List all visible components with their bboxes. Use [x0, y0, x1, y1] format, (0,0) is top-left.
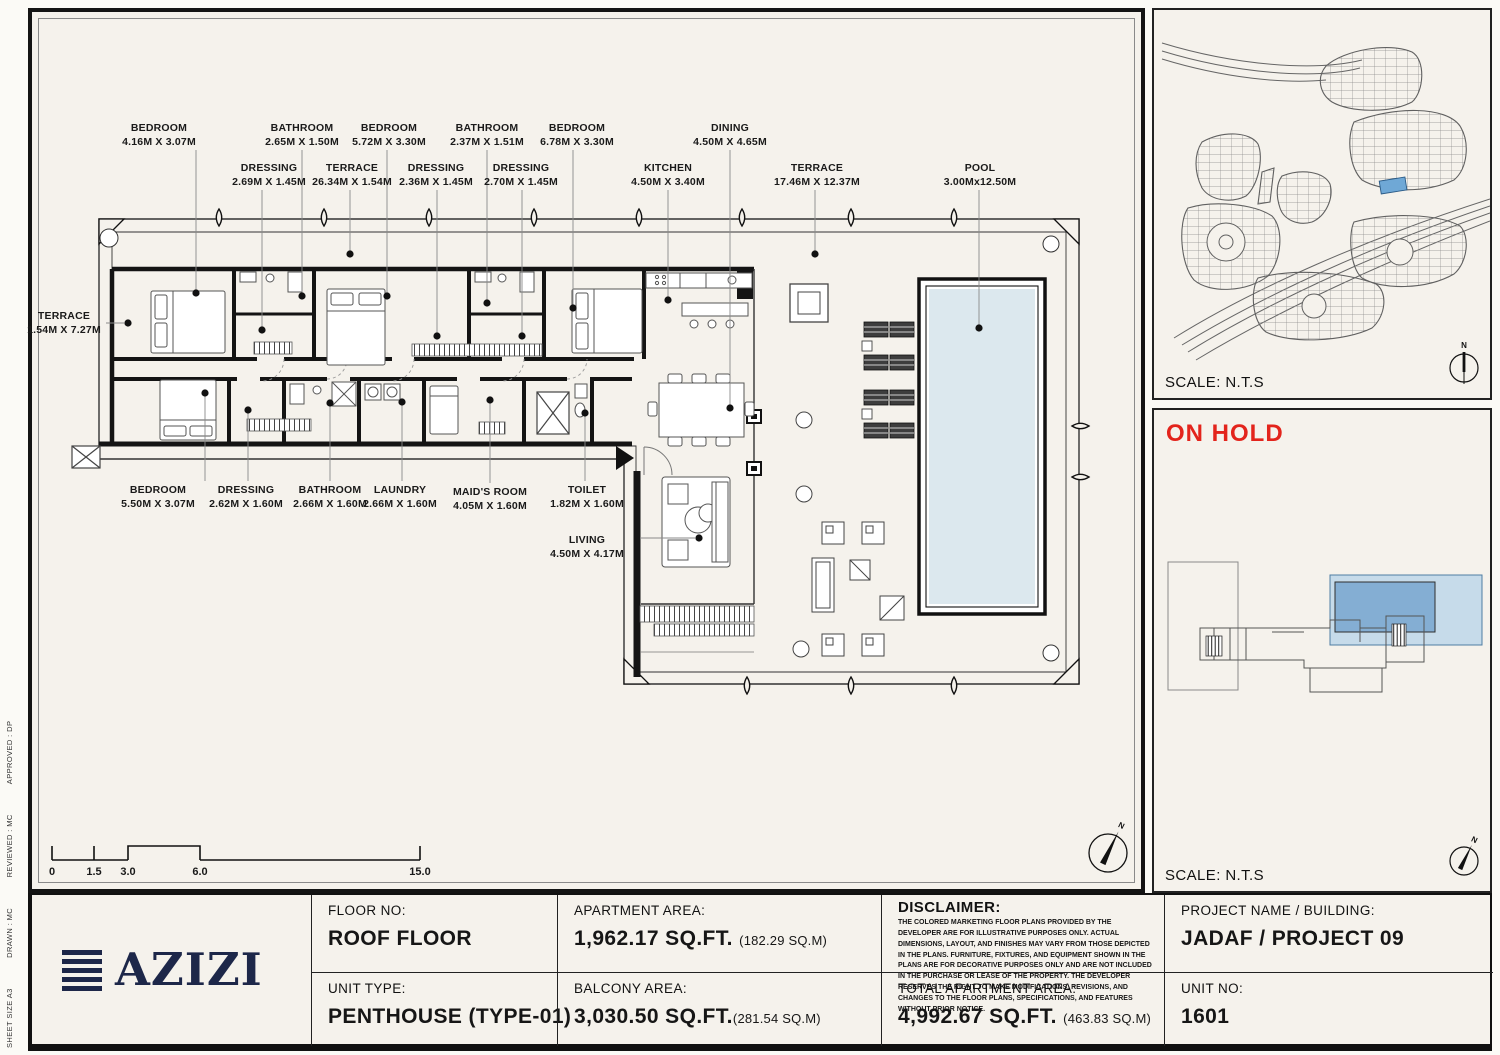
- scale-tick: 1.5: [86, 866, 101, 878]
- svg-text:N: N: [1461, 341, 1467, 350]
- floor-no-label: FLOOR NO:: [312, 895, 557, 918]
- approved-by: APPROVED : DP: [5, 721, 14, 785]
- location-map-panel: SCALE: N.T.S N: [1152, 8, 1492, 400]
- project-name-value: JADAF / PROJECT 09: [1165, 918, 1493, 951]
- total-area-value: 4,992.67 SQ.FT. (463.83 SQ.M): [882, 996, 1164, 1029]
- balcony-area-value: 3,030.50 SQ.FT.(281.54 SQ.M): [558, 996, 881, 1029]
- project-name-label: PROJECT NAME / BUILDING:: [1165, 895, 1493, 918]
- balcony-area-label: BALCONY AREA:: [558, 973, 881, 996]
- room-label: TERRACE1.54M X 7.27M: [27, 310, 101, 337]
- unit-type-cell: UNIT TYPE: PENTHOUSE (TYPE-01): [311, 972, 557, 1046]
- apartment-area-cell: APARTMENT AREA: 1,962.17 SQ.FT. (182.29 …: [557, 895, 881, 972]
- room-label: BEDROOM6.78M X 3.30M: [540, 122, 614, 149]
- keyplan-scale-label: SCALE: N.T.S: [1165, 867, 1264, 884]
- scale-tick: 15.0: [409, 866, 430, 878]
- unit-status-panel: ON HOLD SCALE: N.T.S N: [1152, 408, 1492, 893]
- unit-highlight-dark: [1335, 582, 1435, 632]
- project-name-cell: PROJECT NAME / BUILDING: JADAF / PROJECT…: [1164, 895, 1493, 972]
- floor-no-cell: FLOOR NO: ROOF FLOOR: [311, 895, 557, 972]
- room-label: BEDROOM5.50M X 3.07M: [121, 484, 195, 511]
- apartment-area-label: APARTMENT AREA:: [558, 895, 881, 918]
- scale-tick: 3.0: [120, 866, 135, 878]
- unit-no-cell: UNIT NO: 1601: [1164, 972, 1493, 1046]
- unit-no-label: UNIT NO:: [1165, 973, 1493, 996]
- unit-no-value: 1601: [1165, 996, 1493, 1029]
- balcony-area-cell: BALCONY AREA: 3,030.50 SQ.FT.(281.54 SQ.…: [557, 972, 881, 1046]
- total-area-cell: TOTAL APARTMENT AREA: 4,992.67 SQ.FT. (4…: [881, 972, 1164, 1046]
- room-label: LAUNDRY2.66M X 1.60M: [363, 484, 437, 511]
- logo-wordmark: AZIZI: [115, 943, 263, 996]
- room-label: DRESSING2.70M X 1.45M: [484, 162, 558, 189]
- room-label: TERRACE26.34M X 1.54M: [312, 162, 392, 189]
- room-label: KITCHEN4.50M X 3.40M: [631, 162, 705, 189]
- room-label: LIVING4.50M X 4.17M: [550, 534, 624, 561]
- room-label: BEDROOM4.16M X 3.07M: [122, 122, 196, 149]
- floor-no-value: ROOF FLOOR: [312, 918, 557, 951]
- map-compass-icon: N: [1446, 340, 1482, 386]
- disclaimer-cell: DISCLAIMER: THE COLORED MARKETING FLOOR …: [881, 895, 1164, 972]
- room-label: TOILET1.82M X 1.60M: [550, 484, 624, 511]
- community-map: [1154, 10, 1490, 398]
- reviewed-by: REVIEWED : MC: [5, 814, 14, 877]
- scale-bar: [52, 846, 420, 860]
- room-label: TERRACE17.46M X 12.37M: [774, 162, 860, 189]
- sheet-info-strip: SHEET SIZE A3 DRAWN : MC REVIEWED : MC A…: [5, 718, 14, 1048]
- drawn-by: DRAWN : MC: [5, 908, 14, 958]
- unit-type-label: UNIT TYPE:: [312, 973, 557, 996]
- svg-text:N: N: [1117, 820, 1126, 831]
- room-label: DRESSING2.69M X 1.45M: [232, 162, 306, 189]
- room-label: BATHROOM2.37M X 1.51M: [450, 122, 524, 149]
- scale-tick: 0: [49, 866, 55, 878]
- apartment-area-value: 1,962.17 SQ.FT. (182.29 SQ.M): [558, 918, 881, 951]
- room-label: BEDROOM5.72M X 3.30M: [352, 122, 426, 149]
- svg-text:N: N: [1470, 835, 1479, 846]
- key-plan: [1154, 530, 1490, 760]
- sheet-size: SHEET SIZE A3: [5, 988, 14, 1048]
- room-label: DRESSING2.36M X 1.45M: [399, 162, 473, 189]
- floor-plan-sheet: N BEDROOM4.16M X 3.07M BATHROOM2.65M X 1…: [28, 8, 1145, 893]
- status-badge: ON HOLD: [1166, 420, 1284, 448]
- developer-logo: AZIZI: [32, 895, 311, 1044]
- unit-type-value: PENTHOUSE (TYPE-01): [312, 996, 557, 1029]
- room-label: POOL3.00Mx12.50M: [944, 162, 1016, 189]
- map-scale-label: SCALE: N.T.S: [1165, 374, 1264, 391]
- room-label: DINING4.50M X 4.65M: [693, 122, 767, 149]
- room-label: BATHROOM2.66M X 1.60M: [293, 484, 367, 511]
- scale-tick: 6.0: [192, 866, 207, 878]
- room-label: DRESSING2.62M X 1.60M: [209, 484, 283, 511]
- title-block: AZIZI FLOOR NO: ROOF FLOOR UNIT TYPE: PE…: [28, 893, 1492, 1051]
- keyplan-compass-icon: N: [1446, 831, 1482, 879]
- room-label: BATHROOM2.65M X 1.50M: [265, 122, 339, 149]
- room-label: MAID'S ROOM4.05M X 1.60M: [453, 486, 527, 513]
- azizi-bars-icon: [60, 948, 106, 992]
- total-area-label: TOTAL APARTMENT AREA:: [882, 973, 1164, 996]
- disclaimer-label: DISCLAIMER:: [882, 895, 1164, 916]
- north-compass-icon: N: [1089, 820, 1127, 872]
